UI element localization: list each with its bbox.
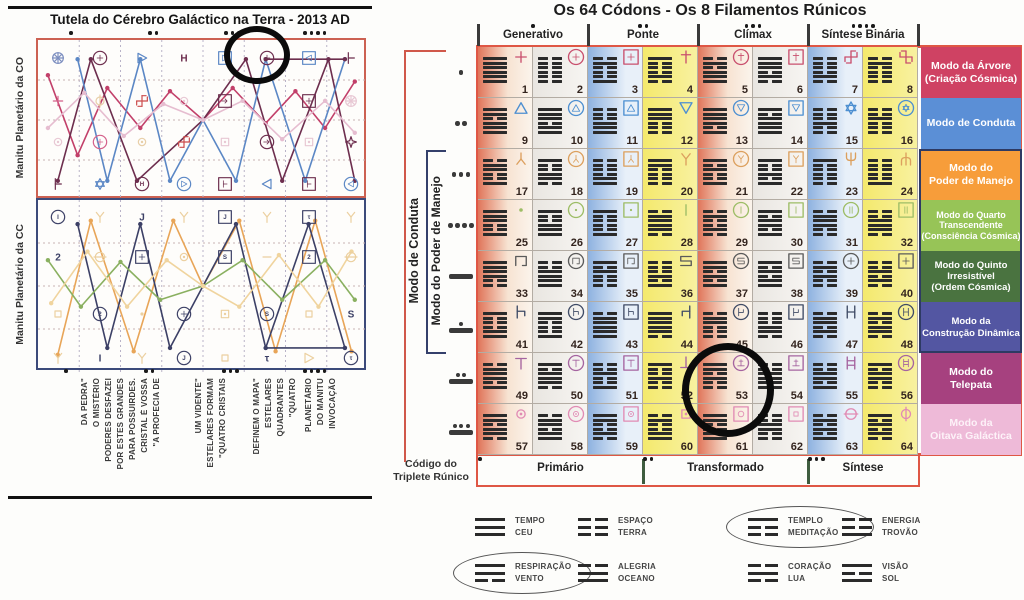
quote-line: "A PROFECIA DE — [152, 378, 161, 447]
hexagram — [483, 210, 507, 236]
hexagram-line — [758, 108, 782, 111]
trigram-line — [475, 572, 505, 575]
hexagram-line — [758, 173, 782, 176]
codon-cell: 22 — [753, 149, 808, 200]
legend-label: VISÃOSOL — [882, 561, 908, 585]
hexagram-line — [868, 312, 892, 315]
rune-symbol — [897, 150, 915, 173]
legend-label: ENERGIATROVÃO — [882, 515, 921, 539]
quote-line: ESTELARES FORMAM — [206, 378, 215, 467]
hexagram-line — [868, 62, 892, 65]
hexagram — [758, 159, 782, 185]
hexagram-line — [538, 414, 562, 417]
quote-line: "QUATRO — [288, 378, 297, 417]
codon-cell: 28 — [643, 200, 698, 251]
hexagram-line — [703, 228, 727, 231]
hexagram-line — [813, 131, 837, 134]
dots-marker — [643, 457, 808, 461]
dotc-symbol — [50, 134, 66, 150]
hexagram-line — [483, 317, 507, 320]
hexagram — [868, 159, 892, 185]
hexagram-line — [703, 224, 727, 227]
tbar-symbol — [301, 176, 317, 192]
svg-text:S: S — [348, 309, 355, 320]
quote-line: CRISTAL É VOSSA — [140, 378, 149, 453]
hexagram-line — [758, 275, 782, 278]
hexagram-line — [813, 437, 837, 440]
hexagram-line — [868, 215, 892, 218]
hexagram-line — [758, 122, 782, 125]
hexagram-line — [648, 108, 672, 111]
mode-label-line: Modo da Árvore — [931, 60, 1011, 72]
codon-number: 12 — [681, 135, 693, 147]
hexagram-line — [648, 275, 672, 278]
hexagram — [483, 108, 507, 134]
hexagram-line — [483, 159, 507, 162]
hexagram — [813, 108, 837, 134]
rune-symbol — [897, 405, 915, 428]
hexagram — [703, 312, 727, 338]
marker-circle-left — [224, 26, 290, 84]
letter-symbol: S — [217, 249, 233, 265]
hexagram — [868, 261, 892, 287]
codon-cell: 37 — [698, 251, 753, 302]
hexagram-line — [758, 71, 782, 74]
dotsq-symbol — [217, 306, 233, 322]
hexagram-line — [538, 182, 562, 185]
hexagram-line — [868, 122, 892, 125]
legend-label-line1: RESPIRAÇÃO — [515, 561, 571, 573]
hexagram-line — [538, 368, 562, 371]
codon-number: 55 — [846, 390, 858, 402]
hexagram-line — [813, 270, 837, 273]
dots-marker — [808, 457, 918, 461]
hexagram-line — [593, 321, 617, 324]
hexagram-line — [538, 419, 562, 422]
hexagram — [648, 57, 672, 83]
dots-marker — [588, 24, 698, 28]
hexagram-line — [868, 164, 892, 167]
hexagram-line — [593, 284, 617, 287]
rune-symbol — [842, 48, 860, 71]
letter-symbol: S — [259, 306, 275, 322]
hexagram-line — [758, 224, 782, 227]
hexagram-line — [538, 432, 562, 435]
codon-number: 9 — [522, 135, 528, 147]
legend-label-line1: ESPAÇO — [618, 515, 653, 527]
hexagram-line — [538, 363, 562, 366]
quote-line: DEFINEM O MAPA" — [252, 378, 261, 454]
codon-cell: 5 — [698, 47, 753, 98]
codon-cell: 14 — [753, 98, 808, 149]
rune-symbol — [787, 354, 805, 377]
hexagram — [813, 261, 837, 287]
codon-cell: 56 — [863, 353, 918, 404]
hexagram-line — [813, 228, 837, 231]
hexagram-line — [648, 126, 672, 129]
hexagram-line — [593, 177, 617, 180]
mode-label-line: Telepata — [950, 379, 992, 391]
hexagram-line — [868, 159, 892, 162]
svg-text:2: 2 — [98, 311, 102, 318]
hexagram — [538, 159, 562, 185]
trigram-line — [578, 533, 608, 536]
hexagram-line — [593, 377, 617, 380]
mayan-number — [452, 172, 471, 177]
hexagram — [758, 210, 782, 236]
svg-text:τ: τ — [265, 354, 270, 365]
hexagram-line — [593, 224, 617, 227]
legend-label: TEMPLOMEDITAÇÃO — [788, 515, 839, 539]
hexagram — [703, 108, 727, 134]
bottom-header-label: Síntese — [808, 462, 918, 474]
hexagram-line — [483, 326, 507, 329]
hexagram-line — [593, 381, 617, 384]
rune-symbol — [732, 48, 750, 71]
hexagram-line — [758, 261, 782, 264]
hexagram-line — [648, 261, 672, 264]
legend-label-line1: TEMPLO — [788, 515, 839, 527]
hexagram-line — [758, 164, 782, 167]
trigram-lua — [748, 564, 778, 582]
hexagram-line — [868, 108, 892, 111]
tbar-symbol — [50, 176, 66, 192]
row-numeral — [446, 302, 476, 353]
trigram-line — [475, 579, 505, 582]
legend-label-line2: TROVÃO — [882, 527, 921, 539]
codon-number: 43 — [626, 339, 638, 351]
hexagram-line — [813, 126, 837, 129]
manejo-side-label: Modo do Poder de Manejo — [429, 149, 443, 353]
mayan-bar — [449, 379, 473, 384]
hexagram — [868, 108, 892, 134]
hexagram-line — [703, 215, 727, 218]
mayan-bar — [449, 328, 473, 333]
tril-symbol — [301, 50, 317, 66]
hexagram-line — [483, 423, 507, 426]
codon-cell: 21 — [698, 149, 753, 200]
hexagram-line — [593, 419, 617, 422]
codon-number: 38 — [791, 288, 803, 300]
hexagram-line — [813, 335, 837, 338]
codon-cell: 16 — [863, 98, 918, 149]
rune-symbol — [622, 48, 640, 71]
hexagram-line — [868, 414, 892, 417]
hexagram-line — [648, 419, 672, 422]
trigram-ceu — [475, 518, 505, 536]
svg-text:I: I — [57, 214, 59, 221]
hexagram-line — [868, 177, 892, 180]
letter-symbol: J — [217, 209, 233, 225]
codon-cell: 25 — [478, 200, 533, 251]
rune-symbol — [567, 48, 585, 71]
section-cc-label: Manitu Planetário da CC — [14, 198, 26, 370]
hexagram-line — [593, 117, 617, 120]
top-header-síntese-binária: Síntese Binária — [808, 24, 918, 46]
hexagram-line — [483, 377, 507, 380]
hexagram-line — [758, 219, 782, 222]
hexagram-line — [813, 215, 837, 218]
row-numeral — [446, 251, 476, 302]
hexagram-line — [483, 233, 507, 236]
top-header-generativo: Generativo — [478, 24, 588, 46]
svg-text:J: J — [182, 355, 186, 362]
hexagram-line — [813, 372, 837, 375]
mode-label: Modo de Conduta — [921, 98, 1021, 149]
phi-symbol — [92, 93, 108, 109]
mode-label-line: Oitava Galáctica — [930, 430, 1012, 442]
hexagram-line — [868, 432, 892, 435]
hexagram-line — [648, 377, 672, 380]
hexagram-line — [868, 381, 892, 384]
triplet-code-caption: Código do Triplete Rúnico — [388, 458, 474, 484]
codon-cell: 39 — [808, 251, 863, 302]
header-divider — [587, 24, 590, 46]
quote-line: DO MANITU — [316, 378, 325, 425]
hexagram-line — [593, 330, 617, 333]
codon-cell: 24 — [863, 149, 918, 200]
hexagram-line — [758, 284, 782, 287]
rune-symbol — [622, 252, 640, 275]
quote-line: PLANETÁRIO — [304, 378, 313, 432]
dots-marker — [303, 369, 326, 373]
dots-marker — [459, 322, 463, 326]
codon-cell: 36 — [643, 251, 698, 302]
hexagram-line — [538, 279, 562, 282]
codon-cell: 15 — [808, 98, 863, 149]
codon-cell: 11 — [588, 98, 643, 149]
hexagram-line — [538, 270, 562, 273]
rune-symbol — [512, 405, 530, 428]
codon-number: 5 — [742, 84, 748, 96]
hexagram-line — [538, 66, 562, 69]
hexagram-line — [593, 312, 617, 315]
bottom-header-primário: Primário — [478, 457, 643, 474]
letter-symbol: 2 — [92, 306, 108, 322]
hexagram-line — [813, 321, 837, 324]
hexagram-line — [483, 164, 507, 167]
hexagram — [868, 414, 892, 440]
hexagram-line — [483, 219, 507, 222]
hexagram-line — [593, 219, 617, 222]
conduta-side-label: Modo de Conduta — [407, 47, 421, 455]
hexagram-line — [868, 284, 892, 287]
hexagram-line — [868, 428, 892, 431]
hexagram-line — [868, 275, 892, 278]
codon-cell: 19 — [588, 149, 643, 200]
rune-symbol — [897, 99, 915, 122]
hexagram-line — [538, 80, 562, 83]
codon-cell: 27 — [588, 200, 643, 251]
trigram-line — [842, 572, 872, 575]
trigram-trovão — [842, 518, 872, 536]
hexagram-line — [758, 182, 782, 185]
hexagram-line — [813, 62, 837, 65]
codon-cell: 42 — [533, 302, 588, 353]
hexagram-line — [703, 117, 727, 120]
codon-number: 64 — [901, 441, 913, 453]
hexagram-line — [483, 414, 507, 417]
hexagram — [813, 363, 837, 389]
hexagram-line — [483, 363, 507, 366]
codon-number: 25 — [516, 237, 528, 249]
hexagram — [758, 57, 782, 83]
hexagram-line — [758, 266, 782, 269]
quote-line: PODERES DESFAZEI — [104, 378, 113, 462]
sqsm-symbol — [301, 306, 317, 322]
legend-label-line1: ENERGIA — [882, 515, 921, 527]
rune-symbol — [787, 303, 805, 326]
hexagram-line — [648, 131, 672, 134]
hexagram-line — [648, 62, 672, 65]
trigram-line — [748, 572, 778, 575]
trir-symbol — [134, 50, 150, 66]
hexagram-line — [593, 182, 617, 185]
legend-label-line2: LUA — [788, 573, 831, 585]
legend-label: RESPIRAÇÃOVENTO — [515, 561, 571, 585]
hexagram — [703, 57, 727, 83]
letter-symbol: H — [134, 176, 150, 192]
hexagram-line — [758, 177, 782, 180]
conduta-bracket — [404, 50, 406, 462]
rune-symbol — [787, 150, 805, 173]
rune-symbol — [842, 405, 860, 428]
hexagram-line — [868, 386, 892, 389]
hexagram-line — [868, 126, 892, 129]
hexagram-line — [538, 168, 562, 171]
rune-symbol — [897, 48, 915, 71]
hexagram — [483, 312, 507, 338]
hexagram-line — [703, 126, 727, 129]
hexagram-line — [483, 122, 507, 125]
marker-circle-right — [682, 343, 774, 437]
hexagram-line — [483, 284, 507, 287]
hexagram-line — [593, 233, 617, 236]
rune-symbol — [622, 303, 640, 326]
hexagram — [593, 312, 617, 338]
hexagram-line — [868, 437, 892, 440]
hexagram-line — [758, 215, 782, 218]
hexagram-line — [648, 66, 672, 69]
hexagram-line — [483, 386, 507, 389]
trigram-line — [578, 518, 608, 521]
hexagram-line — [758, 432, 782, 435]
hexagram-line — [648, 75, 672, 78]
hexagram-line — [538, 164, 562, 167]
hexagram-line — [868, 368, 892, 371]
rune-symbol — [897, 201, 915, 224]
dots-marker — [303, 31, 326, 35]
codon-cell: 6 — [753, 47, 808, 98]
hexagram-line — [648, 381, 672, 384]
codon-cell: 43 — [588, 302, 643, 353]
hexagram-line — [538, 228, 562, 231]
hexagram-line — [648, 117, 672, 120]
hexagram-line — [703, 80, 727, 83]
rune-symbol — [512, 354, 530, 377]
codon-number: 60 — [681, 441, 693, 453]
legend-label: ESPAÇOTERRA — [618, 515, 653, 539]
hexagram-line — [483, 224, 507, 227]
hexagram-line — [868, 261, 892, 264]
hexagram-line — [593, 164, 617, 167]
hexagram — [483, 159, 507, 185]
hexagram-line — [703, 261, 727, 264]
quote-line: INVOCAÇÃO — [328, 378, 337, 429]
codon-number: 19 — [626, 186, 638, 198]
codon-number: 21 — [736, 186, 748, 198]
hexagram-line — [813, 210, 837, 213]
codon-number: 42 — [571, 339, 583, 351]
hexagram-line — [483, 330, 507, 333]
hexagram-line — [483, 182, 507, 185]
hexagram-line — [703, 210, 727, 213]
hexagram-line — [868, 210, 892, 213]
star4-symbol — [343, 134, 359, 150]
rune-symbol — [567, 150, 585, 173]
dots-marker — [452, 172, 471, 177]
mayan-number — [459, 70, 464, 75]
rune-symbol — [622, 150, 640, 173]
hexagram-line — [593, 66, 617, 69]
hexagram-line — [868, 228, 892, 231]
hexagram — [703, 159, 727, 185]
codon-cell: 57 — [478, 404, 533, 455]
row-numeral — [446, 404, 476, 455]
hexagram-line — [758, 66, 782, 69]
legend-label-line2: VENTO — [515, 573, 571, 585]
quote-group: "QUATRO CRISTAISESTELARES FORMAMUM VIDEN… — [194, 378, 227, 467]
hexagram — [538, 210, 562, 236]
hexagram-line — [813, 164, 837, 167]
hexagram — [483, 261, 507, 287]
dots-marker — [64, 369, 68, 373]
codon-cell: 47 — [808, 302, 863, 353]
dots-marker — [478, 457, 643, 461]
section-co-label: Manitu Planetário da CO — [14, 38, 26, 198]
hexagram — [868, 57, 892, 83]
hexagram-line — [703, 317, 727, 320]
codon-cell: 17 — [478, 149, 533, 200]
hexagram-line — [593, 326, 617, 329]
hexagram — [703, 210, 727, 236]
tril-symbol — [343, 176, 359, 192]
rune-symbol — [567, 303, 585, 326]
codon-number: 62 — [791, 441, 803, 453]
codon-number: 1 — [522, 84, 528, 96]
hexagram-line — [868, 117, 892, 120]
svg-text:S: S — [223, 254, 227, 261]
codon-number: 15 — [846, 135, 858, 147]
hexagram — [813, 159, 837, 185]
hexagram-line — [703, 279, 727, 282]
hexagram-line — [483, 168, 507, 171]
rune-symbol — [732, 303, 750, 326]
hexagram-line — [648, 57, 672, 60]
hexagram-line — [758, 279, 782, 282]
mayan-number — [449, 274, 473, 279]
hexagram-line — [593, 173, 617, 176]
hexagram-line — [813, 108, 837, 111]
top-rule — [8, 6, 372, 9]
hexagram-line — [758, 126, 782, 129]
codon-cell: 63 — [808, 404, 863, 455]
hexagram — [648, 312, 672, 338]
dots-marker — [698, 24, 808, 28]
rune-symbol — [677, 252, 695, 275]
hexagram — [758, 261, 782, 287]
rune-symbol — [897, 354, 915, 377]
